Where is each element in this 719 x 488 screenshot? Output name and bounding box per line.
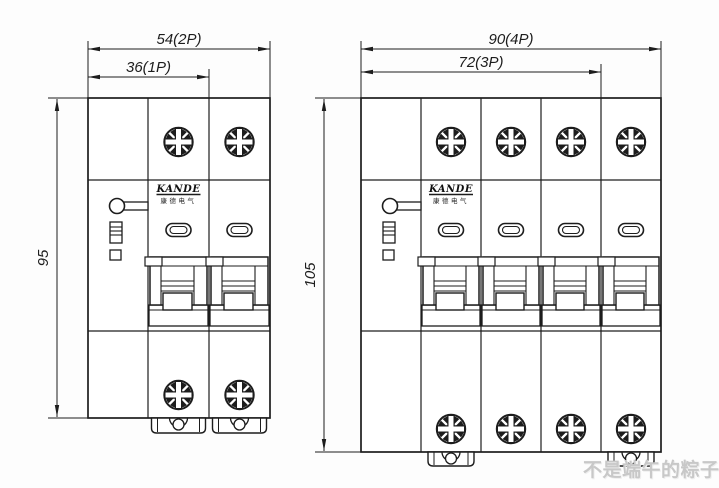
4-pole-breaker-front-view: KANDE康德电气90(4P)72(3P)105 bbox=[302, 31, 661, 466]
dimension-arrow bbox=[361, 70, 373, 74]
brand-logo: KANDE康德电气 bbox=[156, 184, 201, 205]
terminal-screw-icon bbox=[557, 128, 585, 156]
dimension-arrow bbox=[197, 75, 209, 79]
dimension-arrow bbox=[589, 70, 601, 74]
lever-knob bbox=[383, 199, 398, 214]
clip-pin bbox=[173, 419, 184, 430]
brand-logo-text: KANDE bbox=[428, 184, 473, 195]
indicator-window-icon bbox=[227, 224, 252, 237]
dimension-width-outer: 54(2P) bbox=[88, 31, 270, 51]
dimension-arrow bbox=[55, 405, 59, 417]
handle-grip bbox=[556, 293, 584, 310]
terminal-screw-icon bbox=[497, 128, 525, 156]
dimension-height-label: 95 bbox=[35, 249, 52, 266]
toggle-handle bbox=[598, 257, 660, 326]
dimension-arrow bbox=[88, 75, 100, 79]
handle-grip bbox=[163, 293, 192, 310]
toggle-handle bbox=[206, 257, 269, 326]
technical-drawing-canvas: KANDE康德电气54(2P)36(1P)95KANDE康德电气90(4P)72… bbox=[0, 0, 719, 488]
din-rail-clip bbox=[428, 452, 474, 466]
dimension-height-label: 105 bbox=[302, 262, 319, 288]
dimension-width-outer-label: 54(2P) bbox=[156, 31, 201, 48]
terminal-screw-icon bbox=[437, 415, 465, 443]
toggle-handle bbox=[478, 257, 540, 326]
terminal-screw-icon bbox=[164, 128, 192, 156]
terminal-screw-icon bbox=[617, 128, 645, 156]
brand-logo: KANDE康德电气 bbox=[428, 184, 473, 205]
terminal-screw-icon bbox=[617, 415, 645, 443]
terminal-screw-icon bbox=[164, 381, 192, 409]
handle-tab bbox=[598, 257, 615, 266]
terminal-screw-icon bbox=[557, 415, 585, 443]
toggle-handle bbox=[418, 257, 480, 326]
toggle-handle bbox=[145, 257, 208, 326]
handle-grip bbox=[496, 293, 524, 310]
terminal-screw-icon bbox=[437, 128, 465, 156]
din-rail-clip bbox=[152, 418, 206, 433]
terminal-screw-icon bbox=[497, 415, 525, 443]
watermark-text: 不是端午的粽子 bbox=[583, 455, 719, 482]
handle-tab bbox=[145, 257, 162, 266]
dimension-arrow bbox=[55, 99, 59, 111]
dimension-height: 95 bbox=[35, 99, 59, 417]
dimension-width-inner: 72(3P) bbox=[361, 54, 601, 74]
brand-logo-text: KANDE bbox=[156, 184, 201, 195]
2-pole-breaker-front-view: KANDE康德电气54(2P)36(1P)95 bbox=[35, 31, 270, 433]
indicator-window-icon bbox=[166, 224, 191, 237]
indicator-window-icon bbox=[619, 224, 644, 237]
brand-logo-chinese: 康德电气 bbox=[433, 196, 469, 205]
handle-tab bbox=[206, 257, 223, 266]
dimension-width-outer: 90(4P) bbox=[361, 31, 661, 51]
dimension-width-inner-label: 36(1P) bbox=[126, 59, 171, 76]
indicator-window-icon bbox=[499, 224, 524, 237]
handle-tab bbox=[418, 257, 435, 266]
dimension-arrow bbox=[322, 439, 326, 451]
dimension-arrow bbox=[258, 47, 270, 51]
dimension-width-inner: 36(1P) bbox=[88, 59, 209, 79]
dimension-height: 105 bbox=[302, 99, 326, 451]
handle-tab bbox=[478, 257, 495, 266]
dimension-arrow bbox=[361, 47, 373, 51]
brand-logo-chinese: 康德电气 bbox=[161, 196, 197, 205]
clip-pin bbox=[234, 419, 245, 430]
indicator-window-icon bbox=[439, 224, 464, 237]
dimension-arrow bbox=[649, 47, 661, 51]
dimension-width-outer-label: 90(4P) bbox=[488, 31, 533, 48]
terminal-screw-icon bbox=[225, 128, 253, 156]
breaker-dimension-drawing: KANDE康德电气54(2P)36(1P)95KANDE康德电气90(4P)72… bbox=[0, 0, 719, 488]
lever-knob bbox=[110, 199, 125, 214]
toggle-handle bbox=[538, 257, 600, 326]
handle-tab bbox=[538, 257, 555, 266]
clip-pin bbox=[446, 453, 457, 464]
din-rail-clip bbox=[213, 418, 267, 433]
handle-grip bbox=[224, 293, 253, 310]
handle-grip bbox=[616, 293, 644, 310]
handle-grip bbox=[436, 293, 464, 310]
dimension-arrow bbox=[322, 99, 326, 111]
dimension-arrow bbox=[88, 47, 100, 51]
dimension-width-inner-label: 72(3P) bbox=[458, 54, 503, 71]
terminal-screw-icon bbox=[225, 381, 253, 409]
indicator-window-icon bbox=[559, 224, 584, 237]
